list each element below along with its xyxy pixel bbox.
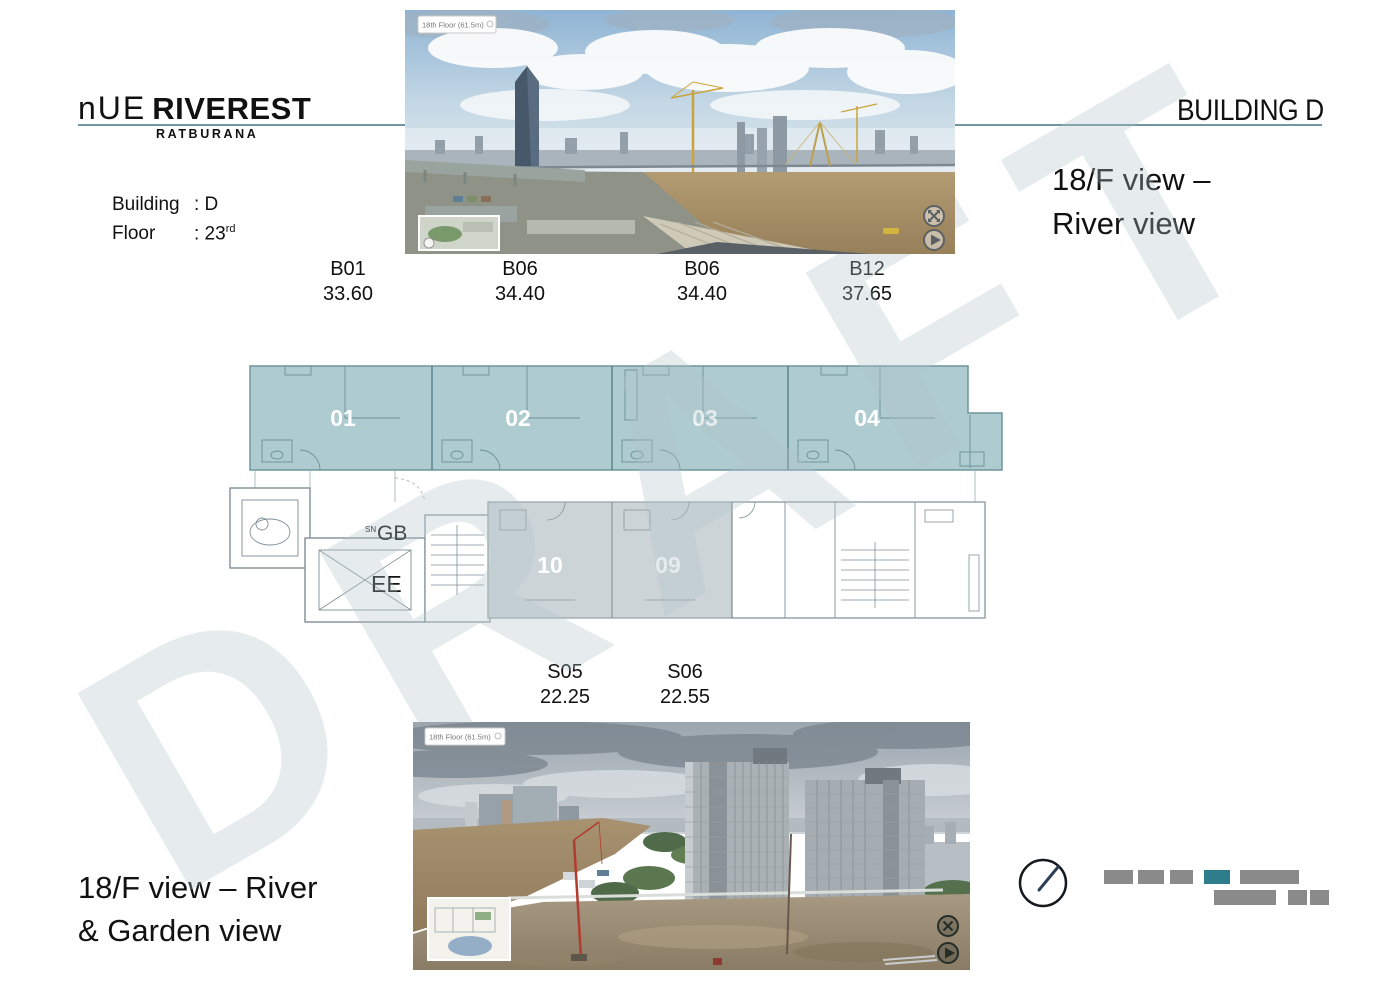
- info-floor-row: Floor: 23rd: [112, 217, 235, 246]
- site-key-block: [1214, 890, 1276, 905]
- unit-label-s05: S05 22.25: [495, 660, 635, 710]
- floor-plan: 01 02 03 04: [225, 360, 1005, 630]
- plan-gray-fill: [488, 502, 732, 618]
- plan-label-gb: GB: [377, 522, 407, 545]
- panorama-photo-river-view: 18th Floor (61.5m): [405, 10, 955, 254]
- floor-tag-label: 18th Floor (61.5m): [422, 21, 484, 30]
- photo-minimap: [419, 216, 499, 250]
- photo-minimap: [428, 898, 510, 960]
- play-icon[interactable]: [938, 943, 958, 963]
- floor-tag-label: 18th Floor (61.5m): [429, 733, 491, 742]
- plan-unit-04: 04: [854, 405, 880, 431]
- expand-icon[interactable]: [938, 916, 958, 936]
- plan-label-ee: EE: [371, 571, 402, 597]
- plan-unit-02: 02: [505, 405, 531, 431]
- plan-unit-09: 09: [655, 552, 681, 578]
- view-title-bottom: 18/F view – River & Garden view: [78, 866, 317, 952]
- unit-label-b12: B12 37.65: [797, 257, 937, 307]
- site-key-block: [1288, 890, 1307, 905]
- unit-label-b01: B01 33.60: [278, 257, 418, 307]
- plan-corridor-lines: [255, 470, 975, 502]
- view-title-top: 18/F view – River view: [1052, 158, 1211, 246]
- site-key-block: [1170, 870, 1193, 884]
- slide: nUERIVEREST RATBURANA BUILDING D Buildin…: [0, 0, 1396, 989]
- floor-tag: 18th Floor (61.5m): [418, 16, 496, 33]
- unit-label-b06-2: B06 34.40: [632, 257, 772, 307]
- plan-gray-units: 10 09: [488, 502, 732, 618]
- plan-stair-west: [425, 515, 490, 622]
- site-key-block: [1240, 870, 1299, 884]
- site-key-block: [1138, 870, 1164, 884]
- plan-unit-01: 01: [330, 405, 356, 431]
- play-icon[interactable]: [924, 230, 944, 250]
- compass-needle: [1039, 867, 1058, 890]
- building-title: BUILDING D: [1177, 94, 1324, 128]
- plan-lower-band: [230, 488, 490, 622]
- plan-teal-band: 01 02 03 04: [250, 366, 1002, 470]
- unit-label-s06: S06 22.55: [615, 660, 755, 710]
- building-floor-info: Building: D Floor: 23rd: [112, 192, 235, 246]
- expand-icon[interactable]: [924, 206, 944, 226]
- site-key-block: [1310, 890, 1329, 905]
- unit-label-b06-1: B06 34.40: [450, 257, 590, 307]
- brand-logo-nue: nUE: [78, 90, 146, 126]
- site-key-block: [1104, 870, 1133, 884]
- panorama-photo-river-garden-view: 18th Floor (61.5m): [413, 722, 970, 970]
- compass-icon: [1012, 852, 1074, 914]
- plan-unit-10: 10: [537, 552, 563, 578]
- plan-label-sn: SN: [365, 525, 376, 534]
- plan-unit-03: 03: [692, 405, 718, 431]
- brand-logo: nUERIVEREST: [78, 90, 311, 127]
- plan-east-rooms: [732, 502, 985, 618]
- floor-tag: 18th Floor (61.5m): [425, 728, 505, 745]
- site-key-block-highlight: [1204, 870, 1230, 884]
- info-building-row: Building: D: [112, 192, 235, 217]
- brand-logo-riverest: RIVEREST: [152, 91, 311, 126]
- brand-logo-subtitle: RATBURANA: [156, 127, 258, 141]
